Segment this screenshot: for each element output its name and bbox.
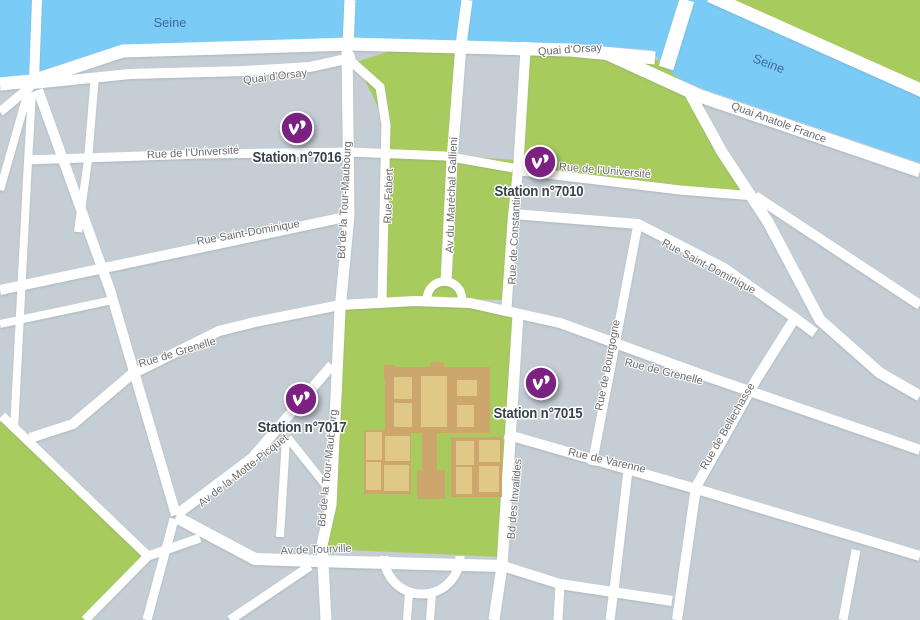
svg-text:Station n°7016: Station n°7016 [253,149,342,166]
svg-text:Av de Tourville: Av de Tourville [280,543,352,557]
svg-text:Rue Fabert: Rue Fabert [382,168,396,223]
svg-text:Seine: Seine [154,15,187,30]
svg-text:Station n°7015: Station n°7015 [494,405,583,422]
svg-text:Station n°7017: Station n°7017 [258,419,347,436]
svg-text:Station n°7010: Station n°7010 [495,183,584,200]
